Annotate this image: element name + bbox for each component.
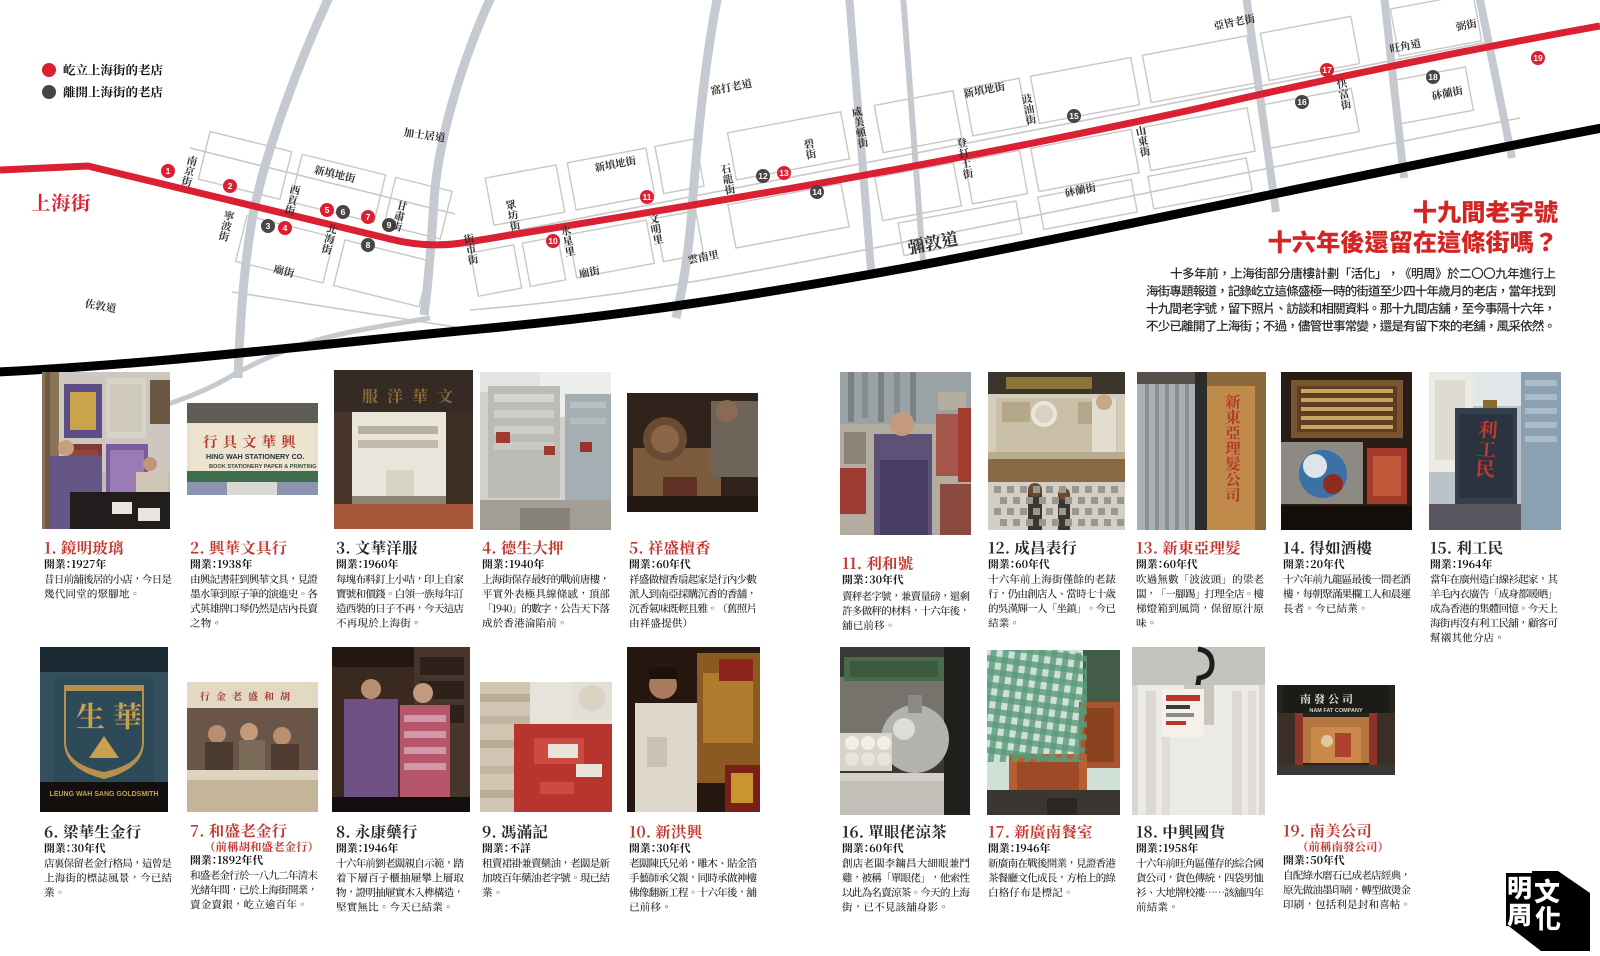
svg-text:2: 2: [228, 181, 233, 191]
svg-text:1: 1: [166, 166, 171, 176]
svg-text:14: 14: [812, 187, 822, 197]
svg-text:15: 15: [1069, 111, 1079, 121]
svg-text:HING WAH STATIONERY CO.: HING WAH STATIONERY CO.: [206, 452, 304, 461]
svg-text:19: 19: [1533, 53, 1543, 63]
svg-text:BOOK STATIONERY PAPER & PRINTI: BOOK STATIONERY PAPER & PRINTING: [209, 464, 317, 470]
svg-text:16: 16: [1297, 97, 1307, 107]
svg-text:10: 10: [548, 236, 558, 246]
svg-text:6: 6: [341, 207, 346, 217]
svg-text:18: 18: [1428, 72, 1438, 82]
svg-text:8: 8: [366, 240, 371, 250]
svg-text:4: 4: [283, 223, 288, 233]
svg-text:17: 17: [1322, 65, 1332, 75]
svg-text:13: 13: [779, 168, 789, 178]
svg-text:5: 5: [325, 205, 330, 215]
svg-text:11: 11: [643, 192, 652, 202]
svg-text:12: 12: [758, 171, 768, 181]
svg-text:LEUNG WAH SANG GOLDSMITH: LEUNG WAH SANG GOLDSMITH: [50, 791, 159, 798]
svg-text:9: 9: [387, 220, 392, 230]
svg-text:3: 3: [266, 221, 271, 231]
svg-text:7: 7: [366, 212, 371, 222]
svg-text:NAM FAT COMPANY: NAM FAT COMPANY: [1309, 708, 1363, 714]
